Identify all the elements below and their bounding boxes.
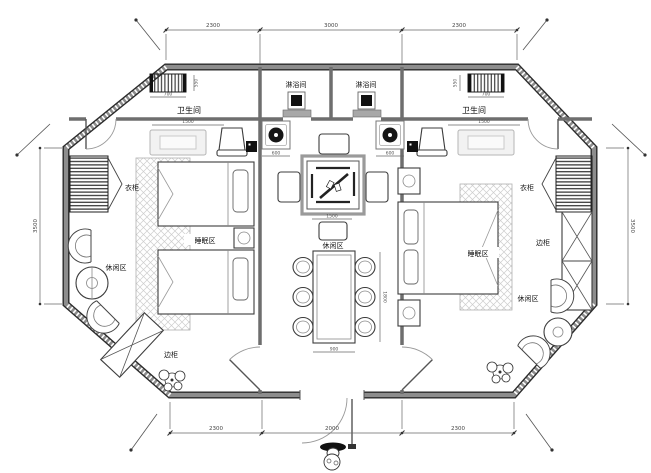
basin-right-dim: 600 xyxy=(386,151,395,157)
vanity-right-dim: 700 xyxy=(482,92,491,98)
nightstand-right-top xyxy=(398,168,420,194)
wardrobe-left-label: 衣柜 xyxy=(125,183,139,192)
game-chair-bottom xyxy=(319,222,347,240)
dim-right-side: 3500 xyxy=(629,219,635,233)
entrance-opening xyxy=(300,389,364,401)
floor-plan-drawing: 700 550 卫生间 1500 700 550 卫生间 1500 淋浴间 淋浴… xyxy=(0,0,651,473)
vanity-left-cap-b xyxy=(183,74,186,92)
tv-left xyxy=(160,136,196,149)
lounge-left-label: 休闲区 xyxy=(106,263,127,272)
floor-drain-left xyxy=(246,141,257,152)
stool-left-base xyxy=(217,150,247,156)
basin-left-plug xyxy=(274,133,278,137)
vanity-left-depth-dim: 550 xyxy=(194,79,200,88)
vanity-right xyxy=(468,74,504,92)
shower-left-drain xyxy=(291,95,302,106)
sleeping-left-label: 睡眠区 xyxy=(195,237,216,245)
dim-bottom-right: 2300 xyxy=(451,426,465,432)
dim-bottom-mid: 2000 xyxy=(325,426,339,432)
stool-right-base xyxy=(417,150,447,156)
basin-left-dim: 600 xyxy=(272,151,281,157)
dim-bottom-left: 2300 xyxy=(209,426,223,432)
game-chair-right xyxy=(366,172,388,202)
dining-table xyxy=(313,251,355,343)
wardrobe-right-unit xyxy=(556,156,592,212)
dim-top-right: 2300 xyxy=(452,23,466,29)
dining-dim-l: 1800 xyxy=(382,291,388,303)
dining-dim-w: 900 xyxy=(330,347,339,353)
wardrobe-right-label: 衣柜 xyxy=(520,183,534,192)
nightstand-right-bottom xyxy=(398,300,420,326)
nightstand-left xyxy=(234,228,254,248)
wardrobe-left-unit xyxy=(70,156,108,212)
stool-right xyxy=(419,128,445,150)
vanity-left xyxy=(150,74,186,92)
cabinet-right-label: 边柜 xyxy=(536,238,550,247)
cabinet-left-label: 边柜 xyxy=(164,350,178,359)
shower-right-threshold xyxy=(353,110,381,117)
shower-right-drain xyxy=(361,95,372,106)
entrance-door-arc xyxy=(302,398,347,443)
bed-right-pillow-2 xyxy=(404,250,418,284)
shower-left-label: 淋浴间 xyxy=(286,80,307,89)
bath-left-dim: 1500 xyxy=(182,119,194,125)
stool-left xyxy=(219,128,245,150)
lounge-center-label: 休闲区 xyxy=(323,241,344,250)
floor-drain-left-grid xyxy=(249,144,251,146)
vanity-right-depth-dim: 550 xyxy=(453,79,459,88)
dim-top-mid: 3000 xyxy=(324,23,338,29)
vanity-right-cap-b xyxy=(501,74,504,92)
basin-right-plug xyxy=(388,133,392,137)
vanity-left-cap-a xyxy=(150,74,153,92)
dim-left-side: 3500 xyxy=(33,219,39,233)
lounge-table-right xyxy=(544,318,572,346)
vanity-left-dim: 700 xyxy=(164,92,173,98)
floor-plan-page: 700 550 卫生间 1500 700 550 卫生间 1500 淋浴间 淋浴… xyxy=(0,0,651,473)
lounge-right-label: 休闲区 xyxy=(518,294,539,303)
entrance-statue xyxy=(320,443,346,471)
toilet-left-label: 卫生间 xyxy=(177,105,201,115)
tv-right xyxy=(468,136,504,149)
game-chair-left xyxy=(278,172,300,202)
bed-left-1 xyxy=(158,162,254,226)
floor-drain-right xyxy=(407,141,418,152)
game-table-dim: 1500 xyxy=(326,214,338,220)
sleeping-right-label: 睡眠区 xyxy=(468,250,489,258)
entrance-door-handle xyxy=(348,444,356,449)
bed-right-pillow-1 xyxy=(404,210,418,244)
bed-left-2-pillow xyxy=(233,258,248,300)
game-chair-top xyxy=(319,134,349,154)
vanity-right-cap-a xyxy=(468,74,471,92)
shower-left-threshold xyxy=(283,110,311,117)
bed-left-1-pillow xyxy=(233,170,248,212)
bath-right-dim: 1500 xyxy=(478,119,490,125)
toilet-right-label: 卫生间 xyxy=(462,105,486,115)
bed-left-2 xyxy=(158,250,254,314)
dim-top-left: 2300 xyxy=(206,23,220,29)
floor-drain-right-grid xyxy=(410,144,412,146)
shower-right-label: 淋浴间 xyxy=(356,80,377,89)
